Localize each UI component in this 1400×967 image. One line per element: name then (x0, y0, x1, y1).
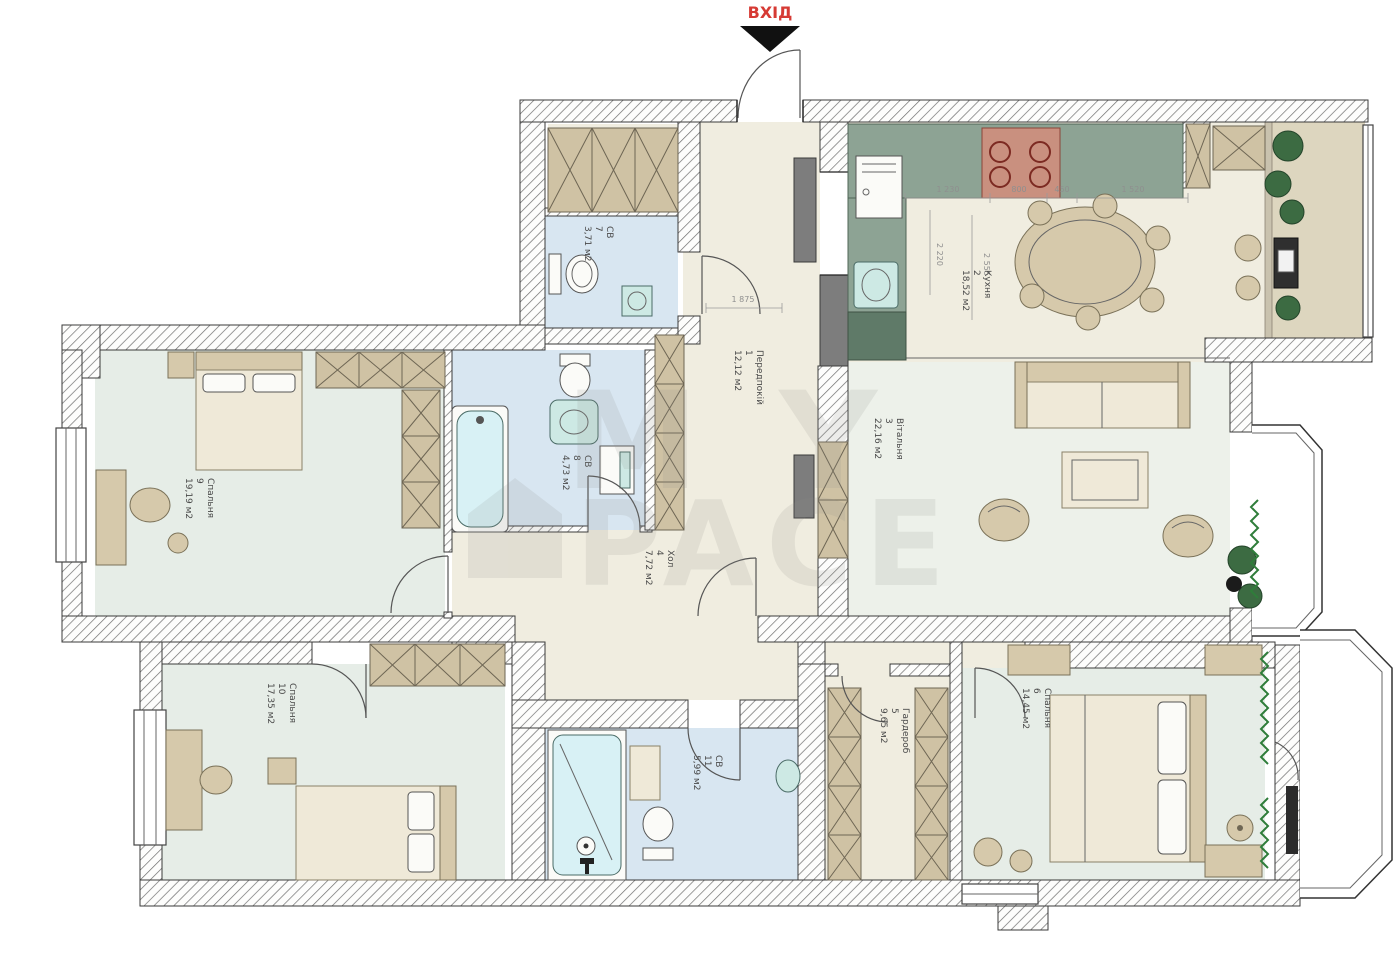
dim-kitchen-1: 1 230 (937, 185, 960, 194)
pillow (1158, 780, 1186, 854)
watermark-line2: PACE (575, 475, 957, 613)
sink-icon (622, 286, 652, 316)
nightstand (268, 758, 296, 784)
bed-headboard (1190, 695, 1206, 862)
armchair-icon (130, 488, 170, 522)
plant-icon (1280, 200, 1304, 224)
svg-text:1: 1 (743, 350, 753, 356)
svg-text:10: 10 (276, 683, 286, 695)
chair-icon (200, 766, 232, 794)
pillow (408, 834, 434, 872)
pillow (1158, 702, 1186, 774)
bed-headboard (196, 352, 302, 370)
dim-kitchen-2: 800 (1011, 185, 1026, 194)
toilet-icon (549, 254, 561, 294)
sink-icon (776, 760, 800, 792)
pillow (203, 374, 245, 392)
cabinet-icon (630, 746, 660, 800)
svg-text:2: 2 (971, 270, 981, 276)
plant-icon (1276, 296, 1300, 320)
dresser-icon (96, 470, 126, 565)
pouf-icon (1010, 850, 1032, 872)
dim-kitchen-3: 450 (1054, 185, 1069, 194)
dim-kitchen-depth-1: 2 220 (935, 243, 944, 266)
dining-chair (1146, 226, 1170, 250)
dining-chair (1140, 288, 1164, 312)
entrance-label: ВХІД (748, 3, 793, 22)
dining-chair (1076, 306, 1100, 330)
fridge-icon (856, 156, 902, 218)
entrance-marker: ВХІД (740, 3, 800, 52)
svg-text:6: 6 (1031, 688, 1041, 694)
svg-text:19,19 м2: 19,19 м2 (183, 478, 193, 519)
dining-chair (1028, 201, 1052, 225)
toilet-icon (643, 807, 673, 841)
entrance-arrow-icon (740, 26, 800, 52)
floor-plan: 1 230 800 450 1 520 1 875 2 220 2 555 Пе… (0, 0, 1400, 967)
bench-icon (1008, 645, 1070, 675)
nightstand (168, 352, 194, 378)
plant-icon (1273, 131, 1303, 161)
armchair-icon (979, 499, 1029, 541)
pillow (408, 792, 434, 830)
svg-text:Спальня: Спальня (1042, 688, 1052, 728)
pouf-icon (1235, 235, 1261, 261)
svg-text:5: 5 (889, 708, 899, 714)
svg-text:5,99 м2: 5,99 м2 (691, 755, 701, 790)
floor-hall (515, 616, 698, 642)
kitchen-appliance (848, 312, 906, 360)
svg-text:Спальня: Спальня (287, 683, 297, 723)
desk-icon (166, 730, 202, 830)
floor-corridor (700, 642, 962, 664)
svg-text:9,65 м2: 9,65 м2 (878, 708, 888, 743)
bay-window-living (1252, 425, 1322, 636)
svg-text:Спальня: Спальня (205, 478, 215, 518)
armchair-icon (1163, 515, 1213, 557)
svg-text:14,45 м2: 14,45 м2 (1020, 688, 1030, 729)
svg-text:СВ: СВ (713, 755, 723, 767)
window-bedroom-10 (134, 710, 166, 845)
svg-text:Кухня: Кухня (982, 270, 992, 298)
plant-icon (1238, 584, 1262, 608)
svg-text:9: 9 (194, 478, 204, 484)
dim-hallway: 1 875 (732, 295, 755, 304)
hallway-cabinet (794, 158, 816, 262)
entrance-opening (737, 100, 803, 122)
sofa-back (1025, 362, 1180, 382)
plant-icon (1226, 576, 1242, 592)
svg-text:18,52 м2: 18,52 м2 (960, 270, 970, 311)
pouf-icon (1236, 276, 1260, 300)
plant-icon (1265, 171, 1291, 197)
svg-text:11: 11 (702, 755, 712, 766)
window-bedroom-6-side (1286, 786, 1298, 854)
svg-text:3,71 м2: 3,71 м2 (582, 226, 592, 261)
pillow (253, 374, 295, 392)
svg-text:Гардероб: Гардероб (900, 708, 910, 754)
dining-chair (1020, 284, 1044, 308)
kitchen-opening (820, 172, 848, 275)
dim-kitchen-4: 1 520 (1122, 185, 1145, 194)
dresser-icon (1205, 645, 1262, 675)
pouf-icon (168, 533, 188, 553)
svg-text:СВ: СВ (604, 226, 614, 238)
pouf-icon (974, 838, 1002, 866)
bed-headboard (440, 786, 456, 880)
window-bedroom-9 (56, 428, 86, 562)
nightstand (1205, 845, 1262, 877)
bay-window-bedroom-6 (1300, 630, 1392, 898)
balcony-partition (1265, 122, 1272, 338)
svg-text:7: 7 (593, 226, 603, 232)
svg-text:17,35 м2: 17,35 м2 (265, 683, 275, 724)
floor-plan-page: 1 230 800 450 1 520 1 875 2 220 2 555 Пе… (0, 0, 1400, 967)
